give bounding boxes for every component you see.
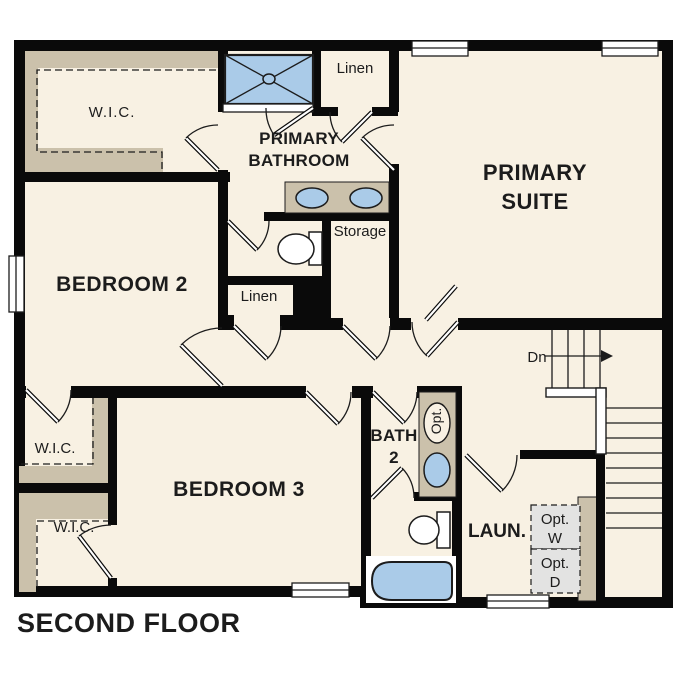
window-suite-1 bbox=[412, 41, 468, 56]
stair-landing-rail-v bbox=[596, 388, 606, 454]
wall-suite-south-c bbox=[458, 318, 662, 330]
wall-hall-south-a bbox=[14, 386, 26, 398]
wall-linen-hall-b bbox=[280, 315, 295, 330]
window-suite-2 bbox=[602, 41, 658, 56]
bathtub bbox=[366, 556, 456, 603]
primary-suite-label-1: PRIMARY bbox=[483, 160, 587, 185]
plan-title: SECOND FLOOR bbox=[17, 608, 241, 638]
bath2-label-2: 2 bbox=[389, 448, 399, 467]
toilet-bowl bbox=[278, 234, 314, 264]
window-laundry bbox=[487, 595, 549, 608]
optional-sink-label: Opt. bbox=[428, 408, 444, 434]
shower-curb bbox=[223, 104, 313, 112]
bath2-label-1: BATH bbox=[370, 426, 417, 445]
linen-hall-label: Linen bbox=[241, 288, 278, 305]
wall-hall-south-b bbox=[71, 386, 306, 398]
shower-drain bbox=[263, 74, 275, 84]
chase-block bbox=[293, 276, 331, 330]
wall-wic-col-east-b bbox=[108, 578, 117, 592]
laundry-label: LAUN. bbox=[468, 521, 526, 542]
wic3-shelf-left bbox=[19, 493, 36, 592]
shower bbox=[223, 55, 313, 112]
wall-suite-south-b bbox=[390, 318, 411, 330]
vanity-sink-right bbox=[350, 188, 382, 208]
floor-plan-page: Dn bbox=[0, 0, 687, 687]
laundry-wall-strip bbox=[578, 497, 597, 601]
wall-wic1-south bbox=[14, 172, 230, 182]
wall-toilet-room-south bbox=[218, 276, 295, 285]
wall-wic-divider bbox=[14, 483, 117, 493]
wic1-label: W.I.C. bbox=[89, 104, 136, 121]
wall-laundry-east bbox=[596, 450, 605, 603]
primary-suite-label-2: SUITE bbox=[501, 189, 568, 214]
floor-plan-drawing: Dn bbox=[0, 0, 687, 687]
wic1-shelf-top bbox=[25, 51, 218, 68]
wall-linen-top-south-b bbox=[372, 107, 398, 116]
primary-toilet bbox=[278, 232, 322, 265]
wall-bath-suite-b bbox=[389, 164, 399, 318]
window-bedroom3 bbox=[292, 583, 349, 597]
wall-storage-west bbox=[322, 214, 331, 280]
vanity-sink-left bbox=[296, 188, 328, 208]
bedroom3-label: BEDROOM 3 bbox=[173, 478, 305, 501]
wall-wic-col-east-a bbox=[108, 386, 117, 525]
tub bbox=[372, 562, 452, 600]
wic2-label: W.I.C. bbox=[35, 440, 76, 457]
bath2-vanity bbox=[419, 392, 456, 497]
wall-laundry-north bbox=[520, 450, 605, 459]
wall-bedroom2-east-b bbox=[218, 170, 228, 330]
window-bedroom2 bbox=[9, 256, 24, 312]
wall-linen-top-south-a bbox=[312, 107, 338, 116]
stairs-dn-label: Dn bbox=[527, 349, 546, 366]
wall-suite-south-a bbox=[330, 318, 343, 330]
linen-top-label: Linen bbox=[337, 60, 374, 77]
wic2-shelf-right bbox=[92, 395, 108, 471]
optional-washer-label-2: W bbox=[548, 530, 563, 547]
optional-dryer-label-1: Opt. bbox=[541, 555, 569, 572]
double-vanity bbox=[285, 182, 389, 213]
wall-bath-suite-a bbox=[389, 51, 399, 112]
primary-bathroom-label-1: PRIMARY bbox=[259, 129, 339, 148]
optional-dryer-label-2: D bbox=[550, 574, 561, 591]
bath2-sink bbox=[424, 453, 450, 487]
optional-washer-label-1: Opt. bbox=[541, 511, 569, 528]
bedroom2-label: BEDROOM 2 bbox=[56, 273, 188, 296]
toilet-bowl bbox=[409, 516, 439, 544]
primary-bathroom-label-2: BATHROOM bbox=[248, 151, 349, 170]
wall-hall-south-c bbox=[352, 386, 362, 398]
storage-label: Storage bbox=[334, 223, 387, 240]
wic3-label: W.I.C. bbox=[54, 519, 95, 536]
